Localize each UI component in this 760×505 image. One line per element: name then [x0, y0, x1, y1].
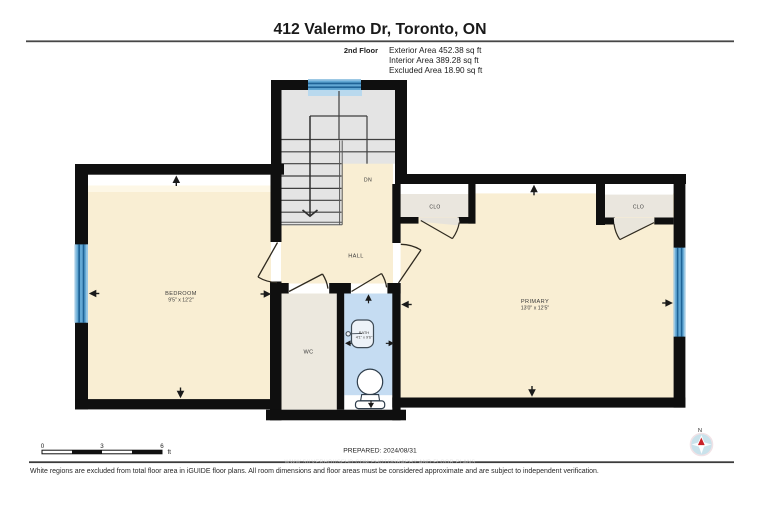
svg-text:Interior Area 389.28 sq ft: Interior Area 389.28 sq ft: [389, 56, 479, 65]
svg-text:CLO: CLO: [633, 205, 644, 211]
svg-text:White regions are excluded fro: White regions are excluded from total fl…: [30, 468, 599, 475]
svg-text:9'5" x 12'2": 9'5" x 12'2": [168, 298, 194, 304]
svg-text:2nd Floor: 2nd Floor: [344, 46, 378, 55]
svg-text:412 Valermo Dr, Toronto, ON: 412 Valermo Dr, Toronto, ON: [273, 21, 486, 38]
svg-text:ft: ft: [168, 449, 172, 456]
svg-text:PRIMARY: PRIMARY: [521, 299, 549, 305]
svg-text:PREPARED: 2024/08/31: PREPARED: 2024/08/31: [343, 448, 417, 455]
svg-text:BEDROOM: BEDROOM: [165, 291, 197, 297]
svg-text:WWW.SILVERHOUSEHD.COM PHOTOGRA: WWW.SILVERHOUSEHD.COM PHOTOGRAPHY AND FL…: [285, 460, 476, 466]
svg-text:4'1" x 9'6": 4'1" x 9'6": [356, 336, 373, 340]
svg-text:BATH: BATH: [359, 330, 369, 335]
svg-text:HALL: HALL: [348, 254, 364, 260]
svg-text:DN: DN: [364, 178, 372, 184]
svg-text:Excluded Area 18.90 sq ft: Excluded Area 18.90 sq ft: [389, 66, 483, 75]
svg-text:WC: WC: [303, 350, 313, 356]
svg-text:CLO: CLO: [429, 205, 440, 211]
svg-text:Exterior Area 452.38 sq ft: Exterior Area 452.38 sq ft: [389, 46, 482, 55]
svg-text:13'0" x 12'5": 13'0" x 12'5": [521, 306, 550, 312]
svg-text:3: 3: [100, 443, 104, 450]
svg-text:6: 6: [160, 443, 164, 450]
svg-text:0: 0: [41, 443, 45, 450]
